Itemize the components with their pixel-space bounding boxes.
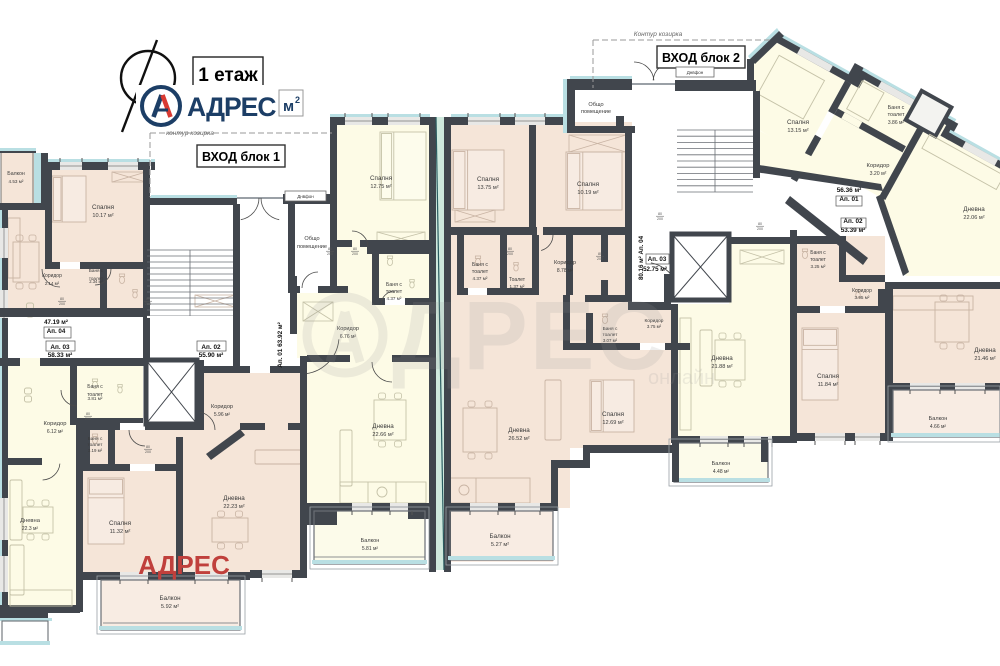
svg-text:Коридор: Коридор — [554, 260, 576, 266]
svg-text:Общо: Общо — [304, 236, 319, 242]
svg-text:12.69 м²: 12.69 м² — [602, 420, 623, 426]
svg-text:10.17 м²: 10.17 м² — [92, 213, 113, 219]
svg-text:Баня с: Баня с — [89, 268, 104, 273]
svg-text:Контур козирка: Контур козирка — [634, 31, 683, 38]
svg-text:Балкон: Балкон — [361, 538, 380, 544]
svg-text:тоалет: тоалет — [810, 257, 826, 263]
svg-text:Спалня: Спалня — [109, 520, 131, 527]
svg-text:Днвфон: Днвфон — [687, 70, 704, 75]
svg-text:80: 80 — [353, 247, 357, 251]
svg-text:Ап. 02: Ап. 02 — [843, 218, 863, 225]
svg-text:Баня с: Баня с — [888, 105, 905, 111]
svg-text:Балкон: Балкон — [7, 171, 25, 177]
svg-text:Дневна: Дневна — [974, 347, 996, 354]
svg-text:Спалня: Спалня — [817, 373, 839, 380]
svg-text:Дневна: Дневна — [372, 423, 394, 430]
svg-text:Спалня: Спалня — [370, 175, 392, 182]
svg-text:Днвфон: Днвфон — [297, 194, 314, 199]
svg-text:3.19 м²: 3.19 м² — [88, 448, 103, 453]
svg-text:5.27 м²: 5.27 м² — [491, 542, 509, 548]
svg-text:80: 80 — [508, 247, 512, 251]
svg-text:Спалня: Спалня — [787, 119, 809, 126]
svg-text:Коридор: Коридор — [852, 288, 872, 294]
svg-text:Баня с: Баня с — [810, 250, 826, 256]
svg-text:3.25 м²: 3.25 м² — [811, 264, 826, 269]
svg-text:80: 80 — [758, 222, 762, 226]
svg-text:200: 200 — [657, 217, 663, 221]
svg-text:ВХОД блок 2: ВХОД блок 2 — [662, 51, 740, 65]
svg-text:200: 200 — [352, 252, 358, 256]
svg-text:тоалет: тоалет — [888, 112, 905, 118]
svg-text:47.19 м²: 47.19 м² — [44, 319, 68, 326]
svg-text:200: 200 — [85, 417, 91, 421]
svg-text:Дневна: Дневна — [20, 518, 41, 524]
svg-text:52.75 м²: 52.75 м² — [643, 266, 667, 273]
svg-text:12.75 м²: 12.75 м² — [370, 184, 391, 190]
svg-text:Спалня: Спалня — [92, 204, 114, 211]
svg-text:Ап. 04: Ап. 04 — [47, 328, 66, 335]
svg-text:200: 200 — [757, 227, 763, 231]
svg-text:80: 80 — [146, 445, 150, 449]
svg-text:200: 200 — [597, 257, 603, 261]
svg-text:2.14 м²: 2.14 м² — [45, 281, 60, 286]
svg-text:13.75 м²: 13.75 м² — [477, 185, 498, 191]
svg-text:5.96 м²: 5.96 м² — [214, 412, 231, 418]
svg-text:55.90 м²: 55.90 м² — [199, 352, 224, 359]
svg-text:22.23 м²: 22.23 м² — [223, 504, 244, 510]
svg-text:Спалня: Спалня — [602, 411, 624, 418]
svg-text:ДРЕС: ДРЕС — [392, 281, 669, 390]
svg-text:тоалет: тоалет — [472, 269, 489, 275]
svg-text:5.81 м²: 5.81 м² — [362, 546, 379, 552]
svg-text:3.20 м²: 3.20 м² — [870, 171, 887, 177]
svg-text:26.52 м²: 26.52 м² — [508, 436, 529, 442]
svg-text:8.78 м²: 8.78 м² — [557, 268, 574, 274]
svg-text:помещение: помещение — [297, 244, 327, 250]
svg-text:Балкон: Балкон — [159, 595, 181, 602]
svg-text:22.06 м²: 22.06 м² — [963, 215, 984, 221]
svg-text:80: 80 — [658, 212, 662, 216]
svg-text:10.19 м²: 10.19 м² — [577, 190, 598, 196]
svg-text:13.15 м²: 13.15 м² — [787, 128, 808, 134]
svg-text:200: 200 — [59, 302, 65, 306]
svg-text:м: м — [283, 98, 294, 115]
svg-text:Баня с: Баня с — [88, 436, 103, 442]
svg-text:3.81 м²: 3.81 м² — [88, 396, 103, 401]
svg-text:80: 80 — [328, 247, 332, 251]
svg-text:Балкон: Балкон — [489, 533, 511, 540]
svg-text:Баня с: Баня с — [472, 262, 488, 268]
svg-text:Ап. 01: Ап. 01 — [839, 196, 859, 203]
svg-text:2: 2 — [295, 95, 300, 105]
svg-text:80: 80 — [86, 412, 90, 416]
svg-text:АДРЕС: АДРЕС — [138, 550, 230, 580]
svg-text:Коридор: Коридор — [867, 163, 890, 169]
svg-text:Ап. 02: Ап. 02 — [201, 344, 221, 351]
svg-text:Общо: Общо — [588, 102, 603, 108]
svg-text:Ап. 01 63.92 м²: Ап. 01 63.92 м² — [277, 322, 284, 368]
svg-text:4.66 м²: 4.66 м² — [930, 424, 947, 430]
svg-text:Коридор: Коридор — [42, 273, 62, 279]
svg-text:6.12 м²: 6.12 м² — [47, 429, 64, 435]
svg-text:Дневна: Дневна — [963, 206, 985, 213]
svg-text:Балкон: Балкон — [712, 461, 731, 467]
svg-text:Коридор: Коридор — [211, 404, 233, 410]
svg-text:Балкон: Балкон — [929, 416, 948, 422]
svg-text:4.53 м²: 4.53 м² — [9, 179, 24, 184]
svg-text:1 етаж: 1 етаж — [198, 65, 258, 86]
svg-text:Спалня: Спалня — [477, 176, 499, 183]
svg-text:Баня с: Баня с — [87, 384, 103, 390]
svg-text:Дневна: Дневна — [223, 495, 245, 502]
svg-text:АДРЕС: АДРЕС — [187, 92, 276, 122]
svg-text:Спалня: Спалня — [577, 181, 599, 188]
svg-text:11.32 м²: 11.32 м² — [110, 529, 131, 535]
svg-text:2.34 м²: 2.34 м² — [89, 279, 103, 284]
svg-text:80: 80 — [598, 252, 602, 256]
svg-text:Ап. 03: Ап. 03 — [648, 256, 667, 263]
svg-text:3.95 м²: 3.95 м² — [855, 295, 870, 300]
svg-text:Дневна: Дневна — [508, 427, 530, 434]
svg-text:200: 200 — [145, 450, 151, 454]
svg-text:3.86 м²: 3.86 м² — [888, 120, 905, 126]
svg-text:80.16 м² Ап. 04: 80.16 м² Ап. 04 — [638, 235, 645, 280]
svg-text:4.48 м²: 4.48 м² — [713, 469, 730, 475]
svg-text:200: 200 — [327, 252, 333, 256]
svg-text:онлайн: онлайн — [648, 367, 715, 389]
svg-text:22.3 м²: 22.3 м² — [22, 526, 39, 532]
svg-text:22.66 м²: 22.66 м² — [372, 432, 393, 438]
svg-text:Ап. 03: Ап. 03 — [50, 344, 70, 351]
svg-text:контур козирка: контур козирка — [166, 130, 214, 137]
svg-text:58.33 м²: 58.33 м² — [48, 352, 73, 359]
svg-text:56.36 м²: 56.36 м² — [837, 187, 862, 194]
svg-text:200: 200 — [507, 252, 513, 256]
svg-text:Коридор: Коридор — [44, 421, 67, 427]
svg-text:ВХОД блок 1: ВХОД блок 1 — [202, 150, 280, 164]
svg-text:80: 80 — [146, 297, 150, 301]
svg-text:Дневна: Дневна — [711, 355, 733, 362]
svg-text:5.92 м²: 5.92 м² — [161, 604, 179, 610]
svg-text:200: 200 — [145, 302, 151, 306]
svg-text:помещение: помещение — [581, 109, 611, 115]
svg-text:11.84 м²: 11.84 м² — [818, 382, 839, 388]
svg-text:21.46 м²: 21.46 м² — [974, 356, 995, 362]
svg-text:80: 80 — [60, 297, 64, 301]
